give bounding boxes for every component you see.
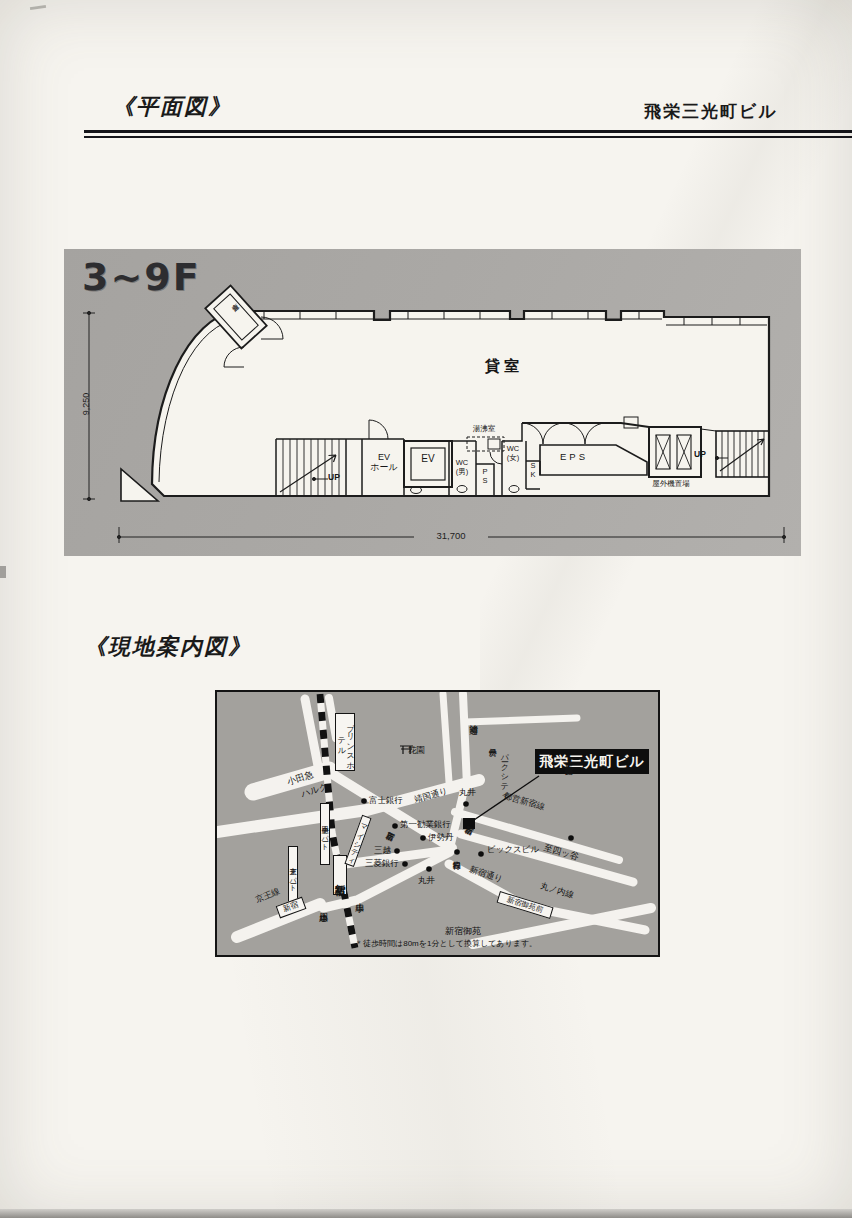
- map-label-yamanote-line: 山手線: [355, 896, 364, 932]
- wc-women-label: WC (女): [500, 445, 526, 462]
- map-walking-time-note: ＊徒歩時間は80mを1分として換算してあります。: [355, 940, 537, 949]
- main-room-label: 貸室: [469, 357, 539, 374]
- wc-men-label: WC (男): [448, 459, 476, 476]
- map-label-meiji-dori: 明治通り: [469, 718, 478, 764]
- hot-water-room-label: 湯沸室: [463, 425, 505, 434]
- floor-range-label: 3~9F: [82, 255, 201, 299]
- map-label-odakyu-depart: 小田急デパート: [320, 803, 330, 865]
- scan-artifact: [0, 566, 6, 578]
- map-label-keio-depart: 京王デパート: [288, 846, 298, 904]
- up-right-label: UP: [694, 450, 706, 460]
- pipe-shaft-label: P S: [476, 468, 494, 485]
- map-label-fuji-bank: 富士銀行: [369, 796, 403, 805]
- scanned-document-page: 《平面図》 飛栄三光町ビル: [0, 0, 852, 1218]
- map-label-mitsubishi-bank: 三菱銀行: [365, 859, 399, 868]
- scan-bottom-edge: [0, 1209, 852, 1218]
- map-label-isetan: 伊勢丹: [428, 833, 454, 842]
- map-label-shinjuku-gyoen: 新宿御苑: [445, 927, 481, 937]
- map-label-odakyu-line: 小田急線: [319, 906, 328, 950]
- ev-label: EV: [412, 453, 444, 465]
- site-map-section-title: 《現地案内図》: [84, 632, 252, 662]
- map-label-prince-hotel: プリンスホテル: [335, 713, 355, 771]
- map-label-kyowa-bank: 協和銀行: [451, 854, 460, 898]
- map-label-isetan-parkcity-1: 伊勢丹: [487, 742, 496, 776]
- map-label-bics-bldg: ビックスビル: [487, 845, 539, 854]
- map-label-daiichi-kangyo-bank: 第一勧業銀行: [400, 820, 451, 829]
- eps-label: EPS: [552, 452, 596, 463]
- map-building-label: 飛栄三光町ビル: [535, 749, 649, 774]
- header-divider: [84, 130, 852, 138]
- height-dimension: 9,250: [81, 376, 91, 432]
- floor-plan-figure: 3~9F 貸室 倉庫 UP EV ホール EV 湯沸室 WC (男) P S W…: [64, 249, 801, 556]
- width-dimension: 31,700: [416, 530, 486, 541]
- site-map-figure: プリンスホテル 小田急デパート 京王デパート 新宿 マイシティ 新宿 新宿御苑前…: [215, 690, 660, 957]
- map-label-hanazono: 花園: [408, 746, 425, 755]
- scan-artifact: [30, 5, 46, 10]
- building-name-title: 飛栄三光町ビル: [644, 100, 778, 123]
- outdoor-unit-label: 屋外機置場: [638, 480, 704, 489]
- map-label-mitsukoshi: 三越: [374, 846, 391, 855]
- ev-hall-label: EV ホール: [366, 452, 402, 473]
- map-label-marui-top: 丸井: [459, 788, 476, 797]
- up-left-label: UP: [328, 473, 340, 483]
- sink-label: S K: [526, 462, 540, 479]
- page-title: 《平面図》: [112, 92, 232, 122]
- map-label-kosei-nenkin-kaikan: 厚生年金会館: [564, 758, 573, 834]
- paper-crease: [0, 950, 852, 1218]
- map-label-marui-bottom: 丸井: [418, 876, 435, 885]
